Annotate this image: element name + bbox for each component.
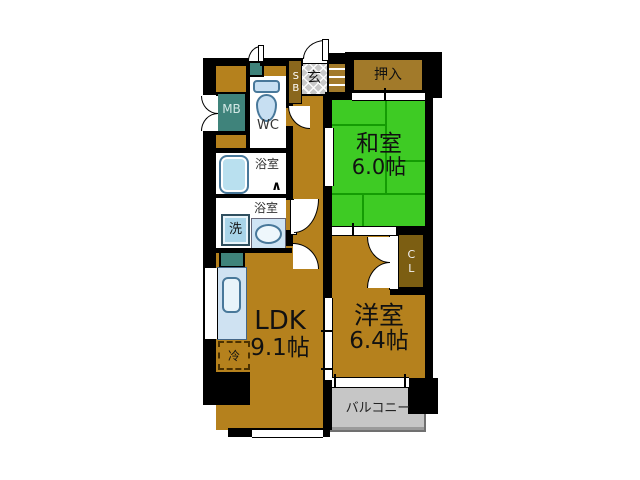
ldk-size: 9.1帖 — [250, 336, 310, 360]
yoshitsu-balcony-window — [332, 377, 409, 388]
ldk-south-window — [252, 429, 323, 438]
wall-wash-bottom — [216, 248, 292, 253]
wall-corner-topright — [424, 52, 442, 98]
oshiire-label: 押入 — [352, 62, 424, 88]
wall-bath-wash — [216, 194, 292, 198]
sliding-door-tick — [384, 88, 386, 100]
sliding-door-tick — [352, 223, 354, 235]
yoshitsu-name: 洋室 — [354, 303, 404, 329]
ps-door-panel — [258, 45, 264, 62]
washroom-label: 浴室 — [246, 200, 286, 216]
bathtub-icon — [219, 155, 249, 194]
wall-oshiire-left — [345, 52, 352, 95]
entrance-door-panel — [322, 39, 329, 61]
wall-cl-top — [396, 226, 425, 234]
tatami-line — [332, 193, 425, 195]
floor-plan: ∧ 和室 6.0帖 LDK 9.1帖 洋室 6.4帖 押入 CL バルコニー 浴… — [0, 0, 640, 480]
tatami-line — [362, 193, 364, 228]
toilet-tank-icon — [253, 80, 280, 93]
bath-folding-door-glyph: ∧ — [271, 179, 282, 194]
kitchen-window — [204, 268, 218, 339]
sb-label: SB — [288, 64, 302, 102]
window-tick — [404, 374, 406, 388]
wall-top-a — [203, 58, 248, 66]
yoshitsu-size: 6.4帖 — [349, 329, 409, 353]
washitsu-name: 和室 — [356, 132, 402, 156]
wall-wc-bath — [216, 148, 292, 153]
bath-folding-door-mark: ∧ — [268, 178, 285, 194]
wall-mb-bottom — [216, 131, 250, 135]
wall-block-bottomleft — [216, 372, 250, 405]
sink-basin-icon — [255, 224, 282, 244]
room-washitsu-label: 和室 6.0帖 — [334, 122, 424, 188]
opening-tick — [321, 368, 333, 370]
wall-utility-right-b — [286, 126, 293, 200]
washitsu-south-sliding-door — [332, 226, 396, 236]
genkan-label: 玄 — [302, 68, 326, 88]
mb-label: MB — [216, 100, 247, 118]
window-tick — [334, 374, 336, 388]
wall-right — [425, 98, 433, 379]
room-yoshitsu-label: 洋室 6.4帖 — [334, 292, 424, 364]
washer-label: 洗 — [222, 221, 249, 239]
fridge-label: 冷 — [218, 347, 250, 365]
pipe-space-lower — [219, 251, 245, 268]
balcony-label: バルコニー — [334, 400, 422, 418]
bath-label: 浴室 — [248, 156, 286, 172]
washitsu-size: 6.0帖 — [352, 156, 406, 178]
washitsu-entry-sliding-door — [324, 128, 334, 186]
ldk-name: LDK — [254, 308, 306, 335]
cl-label: CL — [398, 241, 424, 283]
oshiire-sliding-door — [352, 92, 425, 101]
wc-label: WC — [250, 118, 286, 134]
